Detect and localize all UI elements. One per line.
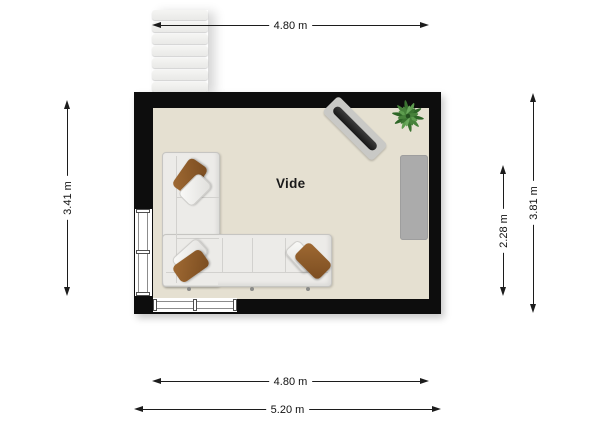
arrowhead-right-icon	[420, 378, 429, 384]
arrowhead-right-icon	[432, 406, 441, 412]
sofa-foot	[187, 287, 191, 291]
arrowhead-down-icon	[530, 304, 536, 313]
sofa-seam	[222, 238, 223, 272]
arrowhead-left-icon	[134, 406, 143, 412]
arrowhead-down-icon	[64, 287, 70, 296]
arrowhead-right-icon	[420, 22, 429, 28]
sideboard[interactable]	[400, 155, 428, 240]
window-bottom-wall[interactable]	[153, 298, 237, 312]
dimension-right-inner: 2.28 m	[503, 165, 504, 296]
room-label: Vide	[276, 176, 305, 191]
dimension-label: 4.80 m	[269, 376, 313, 388]
sofa-seam	[252, 238, 253, 272]
arrowhead-left-icon	[152, 378, 161, 384]
dimension-label: 2.28 m	[498, 209, 510, 253]
plant-icon	[389, 97, 427, 135]
dimension-left: 3.41 m	[67, 100, 68, 296]
stair-tread	[152, 34, 208, 44]
stair-tread	[152, 58, 208, 68]
dimension-top: 4.80 m	[152, 25, 429, 26]
window-frame-cap	[153, 299, 157, 311]
dimension-label: 3.41 m	[62, 176, 74, 220]
sofa-foot	[250, 287, 254, 291]
stair-tread	[152, 82, 208, 92]
dimension-bottom-inner: 4.80 m	[152, 381, 429, 382]
sofa-seam	[285, 238, 286, 272]
arrowhead-up-icon	[500, 165, 506, 174]
window-frame-cap	[193, 299, 197, 311]
floorplan-canvas: Vide	[0, 0, 600, 424]
arrowhead-down-icon	[500, 287, 506, 296]
potted-plant[interactable]	[389, 97, 427, 135]
window-left-wall[interactable]	[135, 209, 152, 296]
dimension-label: 3.81 m	[528, 181, 540, 225]
dimension-right-outer: 3.81 m	[533, 93, 534, 313]
window-frame-cap	[233, 299, 237, 311]
sofa-foot	[306, 287, 310, 291]
window-frame-cap	[136, 292, 150, 296]
stair-tread	[152, 70, 208, 80]
arrowhead-up-icon	[530, 93, 536, 102]
arrowhead-left-icon	[152, 22, 161, 28]
dimension-label: 5.20 m	[266, 404, 310, 416]
window-frame-cap	[136, 209, 150, 213]
stair-tread	[152, 46, 208, 56]
dimension-bottom-outer: 5.20 m	[134, 409, 441, 410]
arrowhead-up-icon	[64, 100, 70, 109]
stair-tread	[152, 10, 208, 20]
dimension-label: 4.80 m	[269, 20, 313, 32]
window-frame-cap	[136, 250, 150, 254]
